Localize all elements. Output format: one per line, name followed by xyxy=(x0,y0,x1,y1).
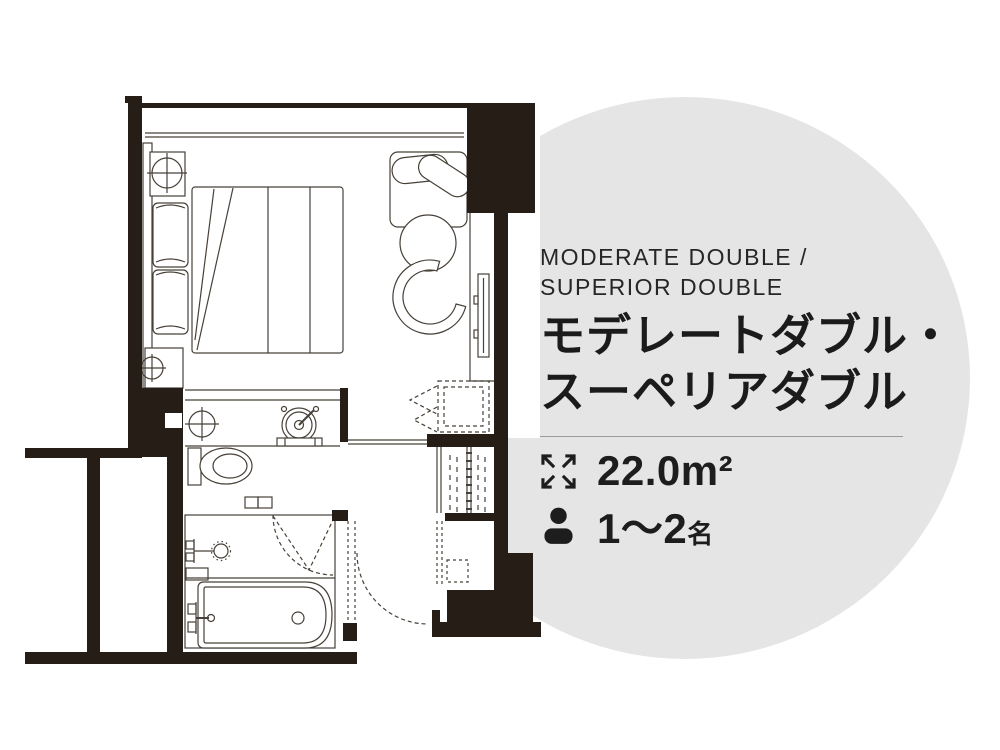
wall-corridor-mid xyxy=(87,457,100,653)
expand-arrows-icon xyxy=(540,454,576,489)
wall-closet-top xyxy=(427,434,495,447)
capacity-range: 1〜2 xyxy=(597,505,687,552)
capacity-value: 1〜2名 xyxy=(597,495,714,556)
room-type-en-line2: SUPERIOR DOUBLE xyxy=(540,272,960,302)
wall-shower-tr xyxy=(332,510,348,521)
area-row: 22.0m² xyxy=(540,451,960,491)
wall-bath-left xyxy=(167,457,183,652)
bed xyxy=(192,187,343,353)
wall-left xyxy=(128,100,142,457)
room-type-en-line1: MODERATE DOUBLE / xyxy=(540,242,960,272)
wall-top-right-column xyxy=(467,103,535,213)
divider-line xyxy=(540,436,903,437)
wall-entry-step xyxy=(432,610,440,622)
room-type-ja-line1: モデレートダブル・ xyxy=(540,308,960,364)
toilet xyxy=(188,448,252,485)
nightstand-lamp-bottom xyxy=(138,348,183,388)
nightstand-lamp-top xyxy=(147,152,187,196)
wall-entry xyxy=(447,590,533,622)
wall-entry-upper xyxy=(494,553,533,590)
wall-shower-br xyxy=(343,623,357,641)
capacity-unit: 名 xyxy=(687,519,714,549)
wall-top xyxy=(142,103,467,108)
wall-closet-bottom xyxy=(445,513,494,521)
room-type-ja-line2: スーペリアダブル xyxy=(540,364,960,420)
capacity-row: 1〜2名 xyxy=(540,505,960,545)
wall-bottom xyxy=(25,652,357,664)
room-type-en: MODERATE DOUBLE / SUPERIOR DOUBLE xyxy=(540,242,960,302)
person-icon xyxy=(540,506,576,545)
wall-niche xyxy=(165,413,182,428)
room-info-card: MODERATE DOUBLE / SUPERIOR DOUBLE モデレートダ… xyxy=(0,0,1000,750)
room-info: MODERATE DOUBLE / SUPERIOR DOUBLE モデレートダ… xyxy=(540,242,960,545)
bathtub xyxy=(198,582,332,648)
wall-entry-bottom xyxy=(432,622,541,637)
room-type-ja: モデレートダブル・ スーペリアダブル xyxy=(540,308,960,420)
wall-corridor-top xyxy=(25,448,142,458)
wall-vanity-right xyxy=(340,388,348,442)
area-value: 22.0m² xyxy=(597,447,733,495)
